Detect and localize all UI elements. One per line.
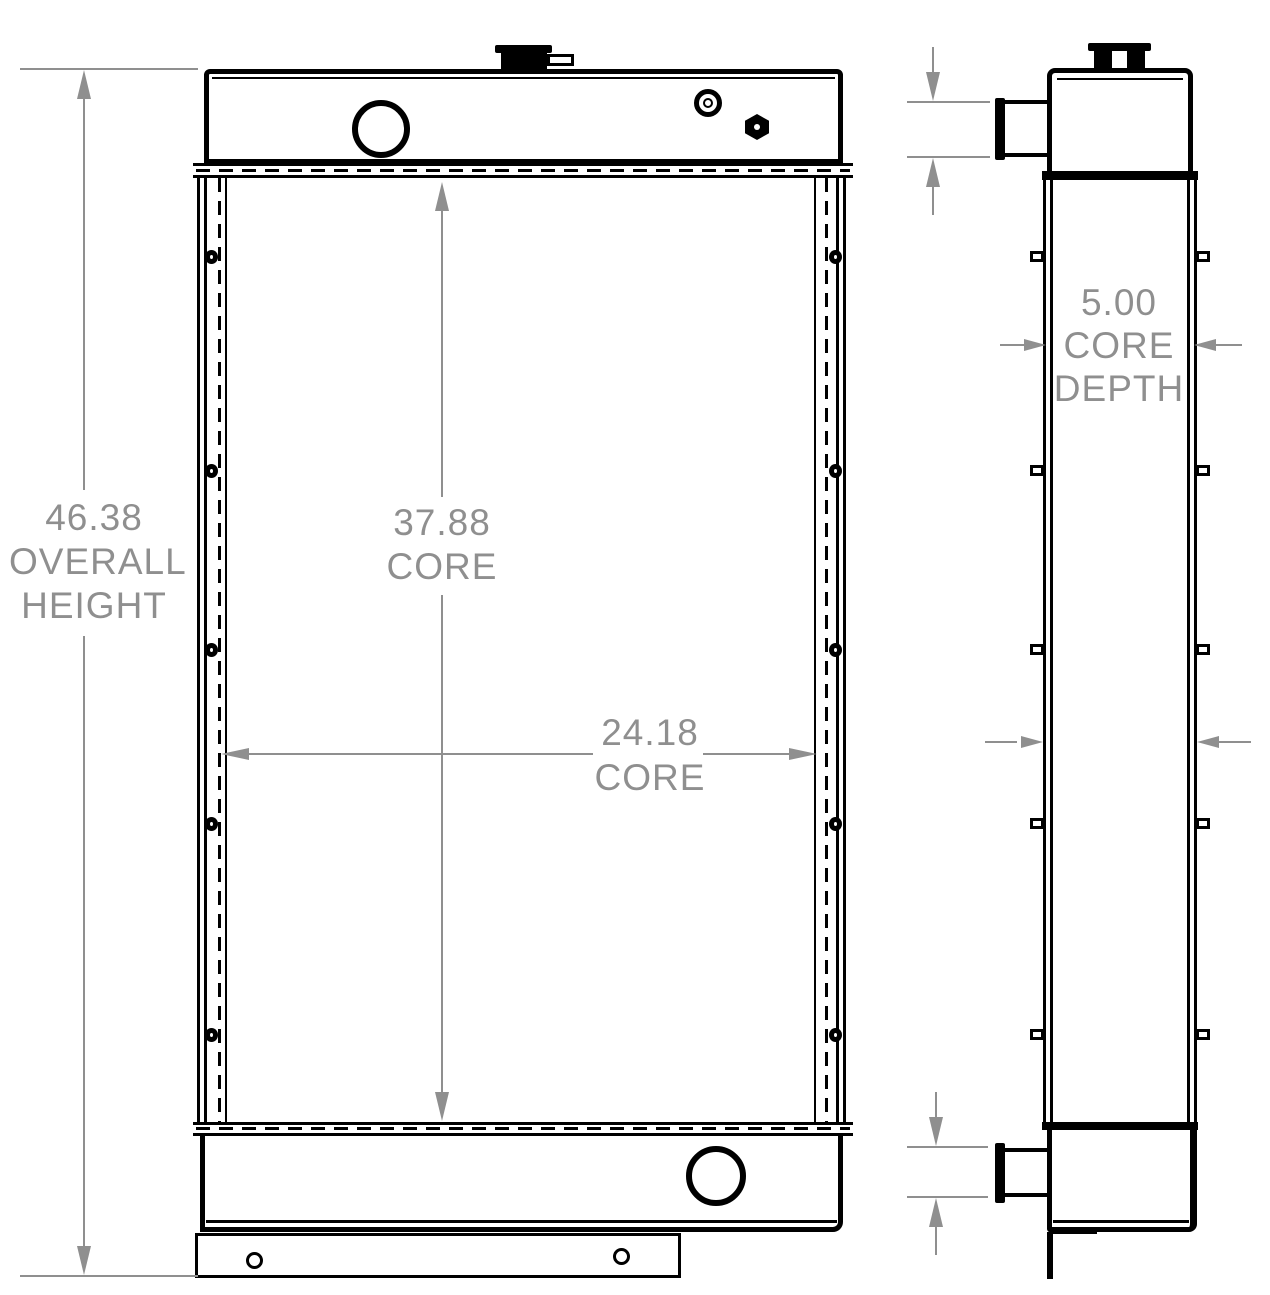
dimension-line-left — [985, 741, 1017, 743]
right-side-panel-hidden-line — [825, 178, 828, 1122]
front-top-tank — [204, 69, 843, 164]
dimension-arrow-left — [1194, 339, 1216, 351]
dimension-arrow-up — [435, 182, 449, 211]
overall-height-label: 46.38 OVERALL HEIGHT — [9, 496, 179, 628]
dim-text-line: OVERALL — [9, 540, 179, 584]
dimension-arrow-right — [1021, 736, 1043, 748]
dimension-line-lower — [441, 595, 443, 1094]
rivet — [205, 464, 218, 478]
dim-text-line: DEPTH — [1049, 367, 1189, 410]
top-tank-fitting-center — [703, 98, 713, 108]
dim-text-line: CORE — [1049, 324, 1189, 367]
side-mounting-tab — [1030, 465, 1044, 476]
dim-text-line: 5.00 — [1049, 281, 1189, 324]
side-mounting-tab — [1196, 251, 1210, 262]
filler-cap-side-post — [1094, 51, 1112, 69]
dimension-arrow-right — [789, 748, 817, 760]
front-bottom-tank — [200, 1136, 843, 1232]
right-core-edge-line — [814, 178, 816, 1122]
core-width-value: 24.18 — [579, 711, 721, 755]
dimension-line-right — [1216, 344, 1242, 346]
side-top-tank-bottom-bar — [1042, 171, 1198, 180]
rivet — [829, 1028, 842, 1042]
bottom-header-flange-top-line — [193, 1122, 853, 1125]
front-mounting-bracket — [195, 1233, 681, 1278]
side-bracket-stub — [1053, 1229, 1097, 1234]
extension-line-top — [20, 68, 198, 70]
rivet — [205, 817, 218, 831]
core-width-word: CORE — [579, 756, 721, 800]
dim-text-line: 37.88 — [371, 501, 513, 545]
arrow-leader-bottom — [932, 187, 934, 215]
dimension-arrow-down — [929, 1117, 943, 1146]
side-mounting-tab — [1030, 1029, 1044, 1040]
extension-line-lower — [907, 1196, 988, 1198]
dimension-arrow-down — [77, 1246, 91, 1275]
side-bottom-tank-hem-line — [1053, 1220, 1189, 1223]
front-bottom-tank-hem-line — [206, 1220, 837, 1223]
dimension-line-right — [1219, 741, 1251, 743]
dimension-line-upper — [441, 208, 443, 497]
top-header-flange-bottom-line — [193, 175, 853, 178]
extension-line-upper — [907, 101, 990, 103]
filler-cap-overflow-spout — [547, 54, 574, 66]
left-core-edge-line — [225, 178, 227, 1122]
side-top-tank — [1047, 68, 1193, 180]
dimension-arrow-down — [926, 72, 940, 101]
filler-cap-side-post — [1127, 51, 1145, 68]
dimension-arrow-left — [1197, 736, 1219, 748]
left-side-panel-hidden-line — [218, 178, 221, 1122]
core-depth-label: 5.00 CORE DEPTH — [1049, 281, 1189, 410]
bottom-tank-outlet-hole — [686, 1146, 746, 1206]
top-tank-inlet-hole — [352, 100, 410, 158]
rivet — [829, 250, 842, 264]
right-side-panel-outer-line — [843, 178, 846, 1122]
extension-line-upper — [907, 1146, 988, 1148]
side-bottom-tank-top-bar — [1042, 1122, 1198, 1130]
rivet — [205, 250, 218, 264]
arrow-leader-top — [935, 1092, 937, 1120]
extension-line-lower — [907, 156, 990, 158]
dimension-arrow-down — [435, 1092, 449, 1121]
side-bracket-vertical — [1047, 1232, 1053, 1279]
side-bottom-tank — [1047, 1130, 1197, 1232]
dimension-line-left — [1000, 344, 1026, 346]
top-header-tube-dashes — [196, 169, 850, 172]
bottom-pipe-flange — [995, 1143, 1005, 1203]
arrow-leader-bottom — [935, 1227, 937, 1255]
side-top-tank-hem-line — [1057, 78, 1183, 80]
bottom-pipe-body — [1005, 1148, 1047, 1197]
dim-text-line: HEIGHT — [9, 584, 179, 628]
filler-cap-side-lid — [1088, 43, 1151, 51]
dimension-arrow-right — [1024, 339, 1046, 351]
bracket-bolt-hole — [613, 1248, 630, 1265]
rivet — [205, 643, 218, 657]
top-pipe-body — [1005, 100, 1047, 157]
rivet — [829, 817, 842, 831]
dim-text-line: 46.38 — [9, 496, 179, 540]
extension-line-bottom — [20, 1275, 198, 1277]
dimension-line-upper — [83, 96, 85, 490]
dimension-arrow-up — [926, 158, 940, 187]
filler-cap-body — [501, 52, 547, 70]
side-mounting-tab — [1196, 1029, 1210, 1040]
dimension-line-lower — [83, 636, 85, 1251]
bracket-bolt-hole — [246, 1252, 263, 1269]
core-height-label: 37.88 CORE — [371, 501, 513, 589]
dim-text-line: CORE — [371, 545, 513, 589]
dimension-arrow-up — [929, 1198, 943, 1227]
radiator-technical-drawing: 46.38 OVERALL HEIGHT 37.88 CORE 24.18 CO… — [0, 0, 1270, 1295]
side-mounting-tab — [1030, 818, 1044, 829]
bottom-header-tube-dashes — [196, 1127, 850, 1130]
side-mounting-tab — [1030, 644, 1044, 655]
dimension-line-left — [247, 753, 593, 755]
side-mounting-tab — [1030, 251, 1044, 262]
dimension-arrow-up — [77, 70, 91, 99]
rivet — [205, 1028, 218, 1042]
rivet — [829, 643, 842, 657]
side-mounting-tab — [1196, 818, 1210, 829]
dimension-arrow-left — [221, 748, 249, 760]
side-mounting-tab — [1196, 465, 1210, 476]
front-top-tank-hem-line — [212, 77, 835, 79]
rivet — [829, 464, 842, 478]
top-pipe-flange — [995, 98, 1005, 160]
left-side-panel-outer-line — [197, 178, 200, 1122]
top-header-flange-top-line — [193, 163, 853, 166]
side-mounting-tab — [1196, 644, 1210, 655]
drain-plug-center-dot — [754, 124, 760, 130]
arrow-leader-top — [932, 47, 934, 75]
